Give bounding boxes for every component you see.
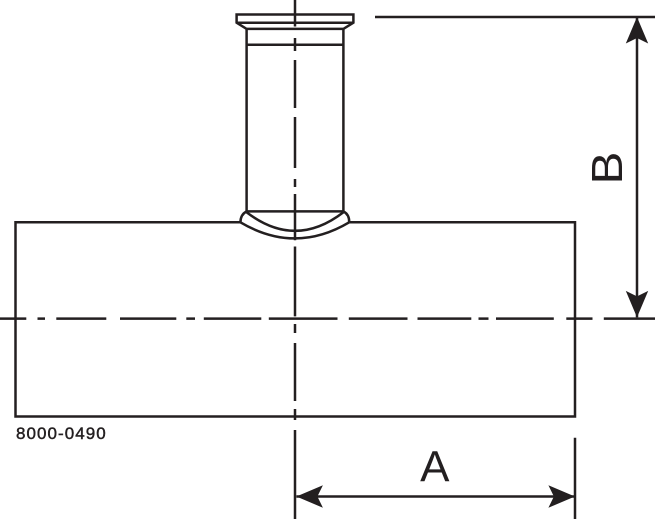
svg-text:8000-0490: 8000-0490 [16,424,107,443]
svg-text:B: B [582,151,631,184]
svg-text:A: A [420,442,450,491]
